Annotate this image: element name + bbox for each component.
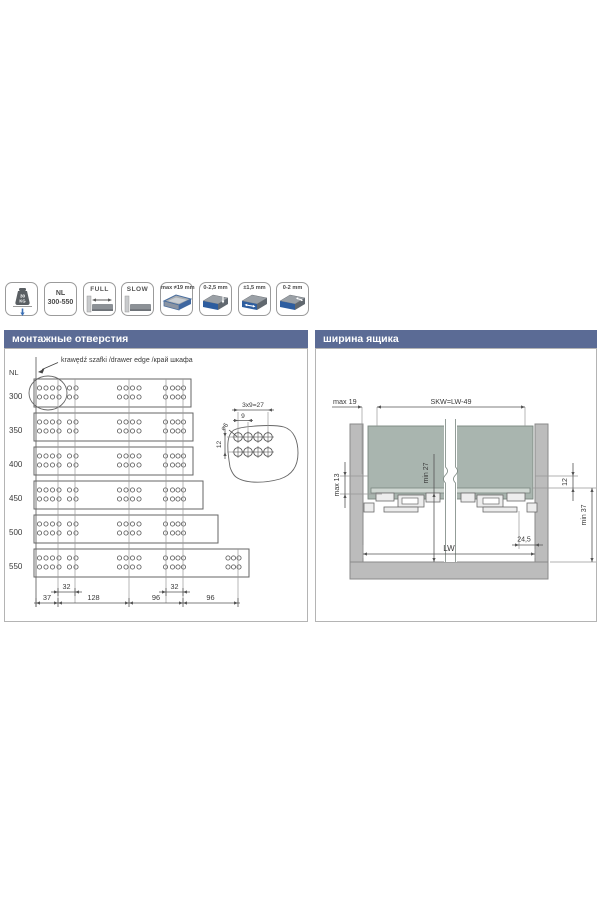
detail-rowgap-dim: 12 [216,441,223,449]
detail-pitch-dim: 9 [241,413,245,420]
cabinet-right-side [535,424,548,579]
row-label-500: 500 [9,528,23,537]
dim-min27: min 27 [423,462,430,483]
row-label-400: 400 [9,460,23,469]
box-tilt-arrow-icon [277,292,310,316]
thickness-label: max ≠19 mm [161,285,192,291]
rail-row-450: 450 [9,481,203,509]
dim-12: 12 [562,478,569,486]
section-break [444,419,457,562]
detail-blob [228,426,298,483]
chain-dim-128: 128 [87,593,99,602]
mounting-holes-diagram: NLkrawędź szafki /drawer edge /край шкаф… [5,349,307,621]
dim-245: 24,5 [517,537,531,544]
dim-max19: max 19 [333,397,357,406]
icon-height-adjustment: 0-2,5 mm [199,282,232,316]
chain-dim-96: 96 [152,593,160,602]
mounting-holes-panel: NLkrawędź szafki /drawer edge /край шкаф… [4,348,308,622]
small-dim-32: 32 [171,582,179,591]
down-arrow-icon [20,309,24,317]
icon-soft-close: SLOW [121,282,154,316]
icon-full-extension: FULL [83,282,116,316]
rail-row-400: 400 [9,447,193,475]
dim-min37: min 37 [581,504,588,525]
box-vertical-arrow-icon [200,292,233,316]
icon-side-adjustment: ±1,5 mm [238,282,271,316]
weight-bottom-label: KG [19,299,25,304]
soft-close-drawer-icon [122,294,155,316]
nl-axis-label: NL [9,368,19,377]
dim-max13: max 13 [334,473,341,496]
dim-skw: SKW=LW-49 [430,397,471,406]
tilt-adj-label: 0-2 mm [277,285,308,291]
drawer-extension-icon [84,294,117,316]
detail-span-dim: 3x9=27 [242,402,264,409]
rail-row-350: 350 [9,413,193,441]
nl-line1: NL [56,290,65,297]
open-box-icon [161,292,194,316]
right-panel-header: ширина ящика [315,330,597,348]
icon-board-thickness: max ≠19 mm [160,282,193,316]
side-adj-label: ±1,5 mm [239,285,270,291]
nl-line2: 300-550 [48,299,74,306]
rail-row-500: 500 [9,515,218,543]
icon-tilt-adjustment: 0-2 mm [276,282,309,316]
product-spec-sheet: 30 KG NL 300-550 FULL [0,0,600,900]
row-label-350: 350 [9,426,23,435]
slow-label: SLOW [122,286,153,293]
row-label-450: 450 [9,494,23,503]
chain-dim-96: 96 [206,593,214,602]
left-panel-header: монтажные отверстия [4,330,308,348]
small-dim-32: 32 [63,582,71,591]
row-label-550: 550 [9,562,23,571]
chain-dim-37: 37 [43,593,51,602]
detail-callout-circle [29,376,67,410]
dim-lw: LW [443,544,455,553]
cabinet-left-side [350,424,363,579]
drawer-width-panel: max 19SKW=LW-49max 13min 2712min 3724,5L… [315,348,597,622]
full-label: FULL [84,286,115,293]
box-horizontal-arrow-icon [239,292,272,316]
drawer-edge-label: krawędź szafki /drawer edge /край шкафа [61,356,193,364]
edge-leader-arrow [38,369,45,374]
weight-icon: 30 KG [6,283,39,317]
cabinet-bottom [350,562,548,579]
icon-load-capacity: 30 KG [5,282,38,316]
drawer-width-diagram: max 19SKW=LW-49max 13min 2712min 3724,5L… [316,349,596,621]
icon-nominal-length: NL 300-550 [44,282,77,316]
height-adj-label: 0-2,5 mm [200,285,231,291]
row-label-300: 300 [9,392,23,401]
